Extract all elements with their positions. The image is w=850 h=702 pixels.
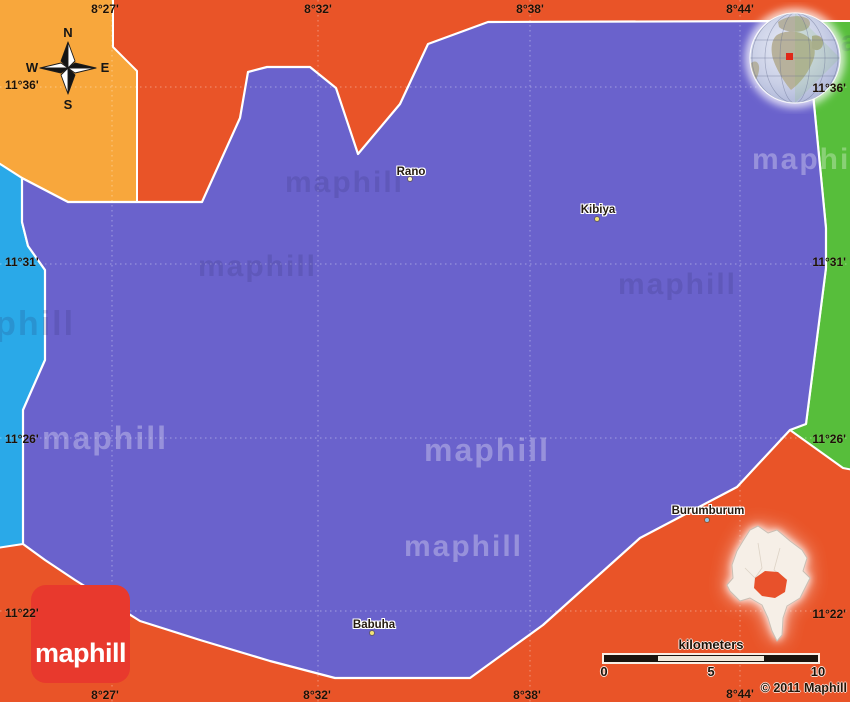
watermark: maphill: [404, 530, 523, 564]
coord-right-1: 11°36': [812, 81, 846, 95]
scale-bar: kilometers 0 5 10: [604, 637, 818, 679]
coord-right-3: 11°26': [812, 432, 846, 446]
scale-bar-unit-label: kilometers: [604, 637, 818, 652]
place-label-babuha: Babuha: [353, 619, 395, 631]
compass-south-label: S: [64, 97, 73, 112]
watermark: maphill: [42, 420, 168, 457]
compass-rose-icon: N S W E: [20, 22, 116, 114]
globe-location-marker: [786, 53, 793, 60]
coord-left-3: 11°26': [5, 432, 39, 446]
compass-north-label: N: [63, 25, 72, 40]
coord-bottom-3: 8°38': [513, 688, 541, 702]
map-canvas[interactable]: maphill maphill maphill maphill maphill …: [0, 0, 850, 702]
coord-bottom-2: 8°32': [303, 688, 331, 702]
scale-tick-0: 0: [600, 664, 607, 679]
watermark: maphill: [618, 268, 737, 302]
coord-left-1: 11°36': [5, 78, 39, 92]
place-dot: [595, 217, 599, 221]
globe-locator-inset: [738, 2, 850, 114]
place-label-kibiya: Kibiya: [581, 204, 616, 216]
coord-top-3: 8°38': [516, 2, 544, 16]
coord-right-2: 11°31': [812, 255, 846, 269]
place-dot: [370, 631, 374, 635]
maphill-logo-text: maphill: [35, 638, 126, 669]
copyright-notice: © 2011 Maphill: [761, 681, 847, 695]
coord-bottom-1: 8°27': [91, 688, 119, 702]
coord-top-1: 8°27': [91, 2, 119, 16]
maphill-logo[interactable]: maphill: [31, 585, 130, 683]
watermark: maphill: [285, 166, 404, 200]
compass-east-label: E: [101, 60, 110, 75]
region-outline-inset: [700, 498, 845, 653]
place-label-rano: Rano: [397, 166, 426, 178]
coord-bottom-4: 8°44': [726, 687, 754, 701]
coord-top-2: 8°32': [304, 2, 332, 16]
scale-tick-5: 5: [707, 664, 714, 679]
scale-bar-segments: [604, 655, 818, 662]
watermark: maphill: [424, 432, 550, 469]
compass-west-label: W: [26, 60, 39, 75]
scale-tick-10: 10: [811, 664, 825, 679]
watermark: maphill: [752, 143, 850, 177]
coord-right-4: 11°22': [812, 607, 846, 621]
coord-top-4: 8°44': [726, 2, 754, 16]
watermark: maphill: [0, 305, 75, 344]
watermark: maphill: [198, 250, 317, 284]
coord-left-2: 11°31': [5, 255, 39, 269]
coord-left-4: 11°22': [5, 606, 39, 620]
